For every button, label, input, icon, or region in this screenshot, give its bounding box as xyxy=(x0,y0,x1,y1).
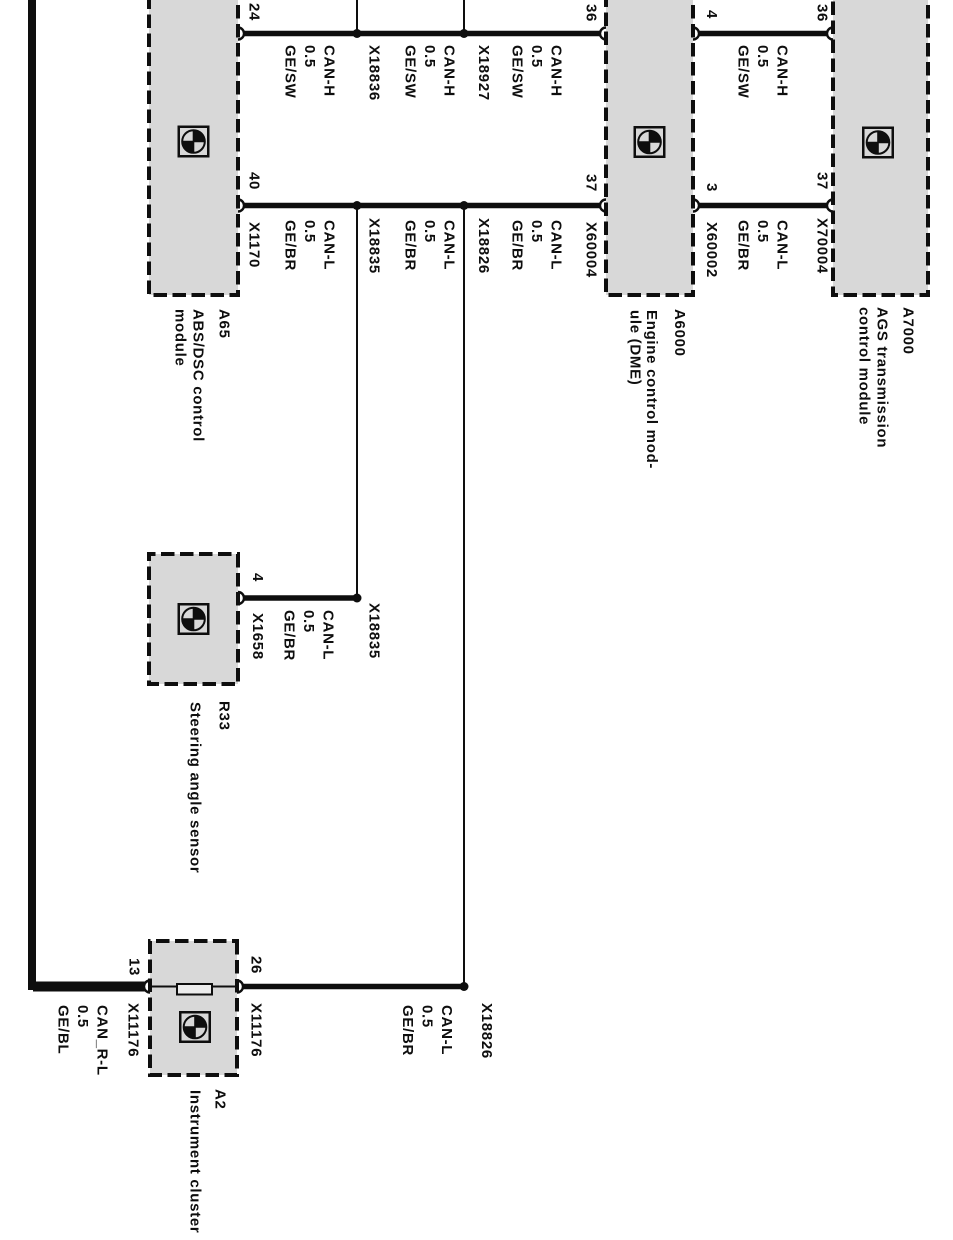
svg-text:R33: R33 xyxy=(215,701,232,731)
svg-text:0.5: 0.5 xyxy=(300,610,317,633)
svg-text:X70004: X70004 xyxy=(813,218,830,274)
svg-text:36: 36 xyxy=(813,4,830,22)
svg-text:X18835: X18835 xyxy=(365,218,382,274)
svg-text:X1170: X1170 xyxy=(246,222,263,268)
svg-text:37: 37 xyxy=(583,174,600,192)
svg-text:CAN-L: CAN-L xyxy=(438,1005,455,1055)
svg-text:0.5: 0.5 xyxy=(528,220,545,243)
svg-text:CAN-H: CAN-H xyxy=(773,45,790,97)
svg-text:GE/BR: GE/BR xyxy=(401,220,418,271)
svg-text:Engine control mod-: Engine control mod- xyxy=(643,310,660,469)
svg-text:GE/SW: GE/SW xyxy=(508,45,525,99)
svg-text:GE/BL: GE/BL xyxy=(54,1005,71,1054)
svg-text:GE/SW: GE/SW xyxy=(734,45,751,99)
svg-text:37: 37 xyxy=(813,172,830,190)
svg-text:X1658: X1658 xyxy=(249,613,266,660)
svg-text:GE/BR: GE/BR xyxy=(280,610,297,661)
svg-text:0.5: 0.5 xyxy=(754,45,771,68)
svg-text:13: 13 xyxy=(126,958,143,976)
svg-text:26: 26 xyxy=(248,956,265,974)
svg-text:0.5: 0.5 xyxy=(301,45,318,68)
svg-text:CAN_R-L: CAN_R-L xyxy=(93,1005,110,1076)
svg-text:ule (DME): ule (DME) xyxy=(626,310,643,385)
svg-text:X60002: X60002 xyxy=(703,222,720,278)
svg-text:X11176: X11176 xyxy=(248,1003,265,1057)
svg-text:0.5: 0.5 xyxy=(528,45,545,68)
svg-text:X18826: X18826 xyxy=(478,1003,495,1059)
svg-text:0.5: 0.5 xyxy=(421,220,438,243)
svg-text:X18927: X18927 xyxy=(475,45,492,101)
svg-text:0.5: 0.5 xyxy=(421,45,438,68)
svg-text:4: 4 xyxy=(249,573,266,582)
svg-text:X18836: X18836 xyxy=(365,45,382,101)
svg-text:X60004: X60004 xyxy=(583,222,600,278)
svg-text:4: 4 xyxy=(703,10,720,19)
svg-text:X18835: X18835 xyxy=(365,603,382,659)
svg-text:GE/BR: GE/BR xyxy=(508,220,525,271)
svg-text:GE/SW: GE/SW xyxy=(281,45,298,99)
svg-text:X18826: X18826 xyxy=(475,218,492,274)
svg-text:CAN-L: CAN-L xyxy=(773,220,790,270)
svg-text:GE/BR: GE/BR xyxy=(281,220,298,271)
svg-text:CAN-L: CAN-L xyxy=(547,220,564,270)
svg-text:GE/BR: GE/BR xyxy=(399,1005,416,1056)
svg-text:CAN-L: CAN-L xyxy=(440,220,457,270)
svg-text:0.5: 0.5 xyxy=(754,220,771,243)
svg-text:CAN-L: CAN-L xyxy=(319,610,336,660)
svg-text:0.5: 0.5 xyxy=(301,220,318,243)
svg-text:A65: A65 xyxy=(215,309,232,339)
svg-text:GE/SW: GE/SW xyxy=(401,45,418,99)
svg-text:ABS/DSC control: ABS/DSC control xyxy=(189,309,206,442)
svg-text:A6000: A6000 xyxy=(671,309,688,357)
svg-text:CAN-H: CAN-H xyxy=(547,45,564,97)
svg-text:control module: control module xyxy=(855,307,872,425)
svg-text:0.5: 0.5 xyxy=(419,1005,436,1028)
svg-text:A7000: A7000 xyxy=(899,307,916,355)
svg-text:3: 3 xyxy=(703,183,720,192)
svg-text:CAN-H: CAN-H xyxy=(440,45,457,97)
svg-text:A2: A2 xyxy=(211,1089,228,1110)
svg-text:module: module xyxy=(171,309,188,367)
svg-text:40: 40 xyxy=(246,172,263,190)
svg-text:0.5: 0.5 xyxy=(74,1005,91,1028)
svg-text:GE/BR: GE/BR xyxy=(734,220,751,271)
svg-text:X11176: X11176 xyxy=(125,1003,142,1057)
svg-text:36: 36 xyxy=(583,4,600,22)
svg-text:24: 24 xyxy=(246,3,263,21)
svg-text:Steering angle sensor: Steering angle sensor xyxy=(186,702,203,873)
svg-text:Instrument cluster: Instrument cluster xyxy=(186,1090,203,1233)
svg-text:CAN-L: CAN-L xyxy=(320,220,337,270)
svg-text:AGS transmission: AGS transmission xyxy=(873,307,890,448)
svg-text:CAN-H: CAN-H xyxy=(320,45,337,97)
